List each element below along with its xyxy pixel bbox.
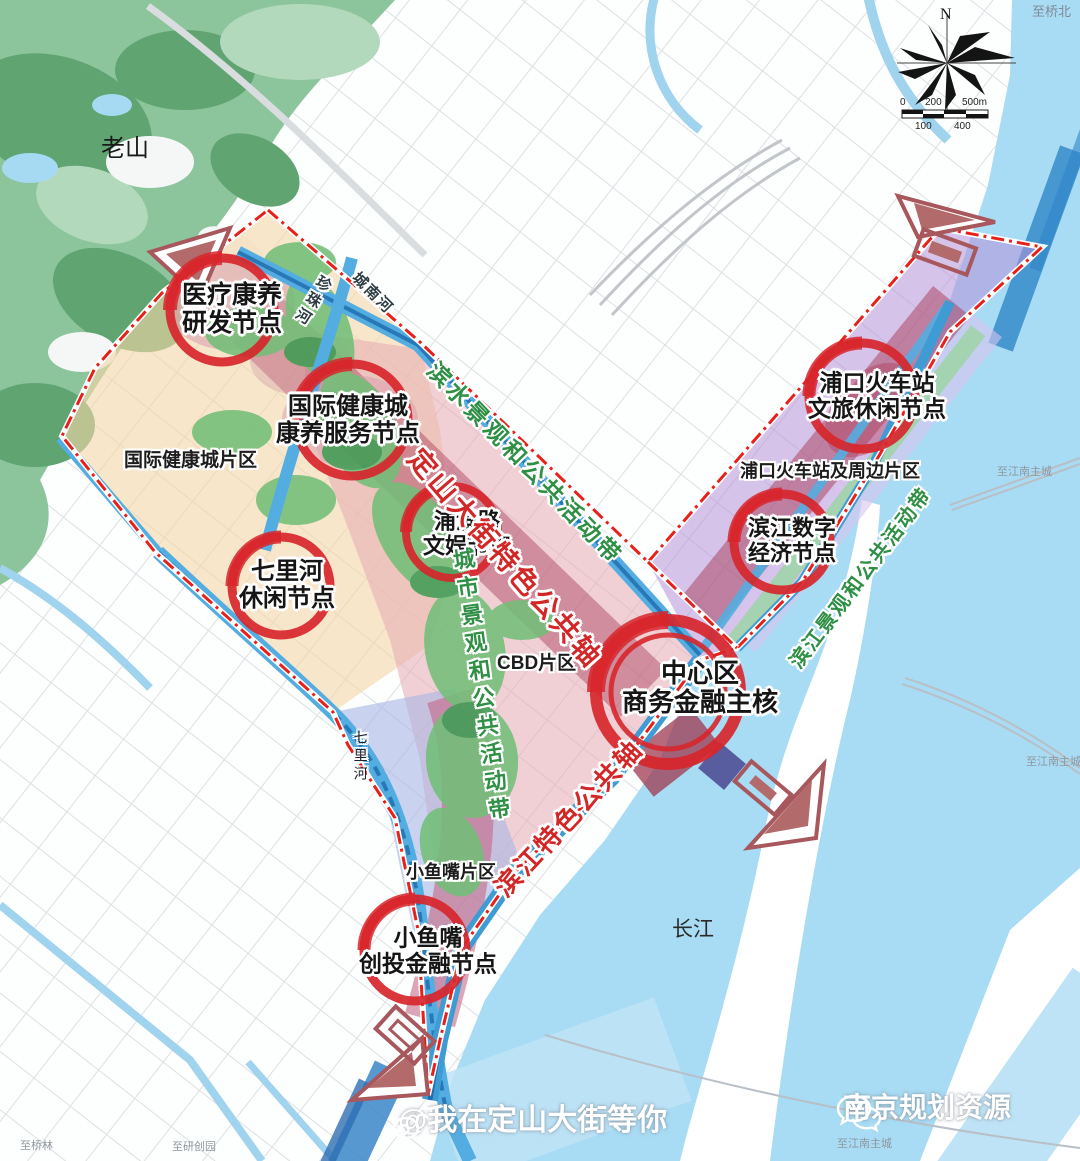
- changjiang-label: 长江: [672, 918, 714, 942]
- wechat-watermark: 南京规划资源: [835, 1092, 1011, 1123]
- district-pukou-station: 浦口火车站及周边片区: [740, 461, 920, 481]
- edge-jiangnan-3: 至江南主城: [837, 1138, 892, 1150]
- edge-qiaolin: 至桥林: [20, 1140, 53, 1152]
- node-health-city: 国际健康城康养服务节点: [276, 394, 420, 448]
- edge-qiaobei: 至桥北: [1032, 5, 1071, 20]
- scale-bar: [902, 110, 988, 118]
- district-cbd: CBD片区: [497, 653, 576, 674]
- qilihe-river-label: 七里河: [352, 730, 368, 784]
- node-binjiang-digital: 滨江数字经济节点: [748, 516, 836, 565]
- planning-map: 老山 长江 七里河 珍珠河 城南河 国际健康城片区 CBD片区 浦口火车站及周边…: [0, 0, 1080, 1161]
- scale-400: 400: [954, 121, 971, 132]
- node-medical: 医疗康养研发节点: [182, 281, 282, 337]
- node-center-core: 中心区商务金融主核: [622, 659, 778, 717]
- weibo-watermark: @我在定山大街等你: [390, 1104, 667, 1138]
- edge-yanchuang: 至研创园: [172, 1141, 216, 1153]
- scale-200: 200: [925, 97, 942, 108]
- scale-100: 100: [915, 121, 932, 132]
- scale-500m: 500m: [962, 97, 987, 108]
- node-pukou-station: 浦口火车站文旅休闲节点: [808, 370, 946, 422]
- weibo-handle: @我在定山大街等你: [398, 1104, 667, 1138]
- laoshan-label: 老山: [101, 136, 149, 163]
- scale-0: 0: [900, 97, 906, 108]
- compass-north-label: N: [940, 6, 952, 24]
- node-qilihe: 七里河休闲节点: [239, 559, 335, 613]
- district-health-city: 国际健康城片区: [124, 450, 257, 471]
- edge-jiangnan-2: 至江南主城: [1026, 756, 1080, 768]
- district-xiaoyuzui: 小鱼嘴片区: [406, 862, 496, 882]
- node-xiaoyuzui: 小鱼嘴创投金融节点: [359, 925, 497, 977]
- edge-jiangnan-1: 至江南主城: [997, 466, 1052, 478]
